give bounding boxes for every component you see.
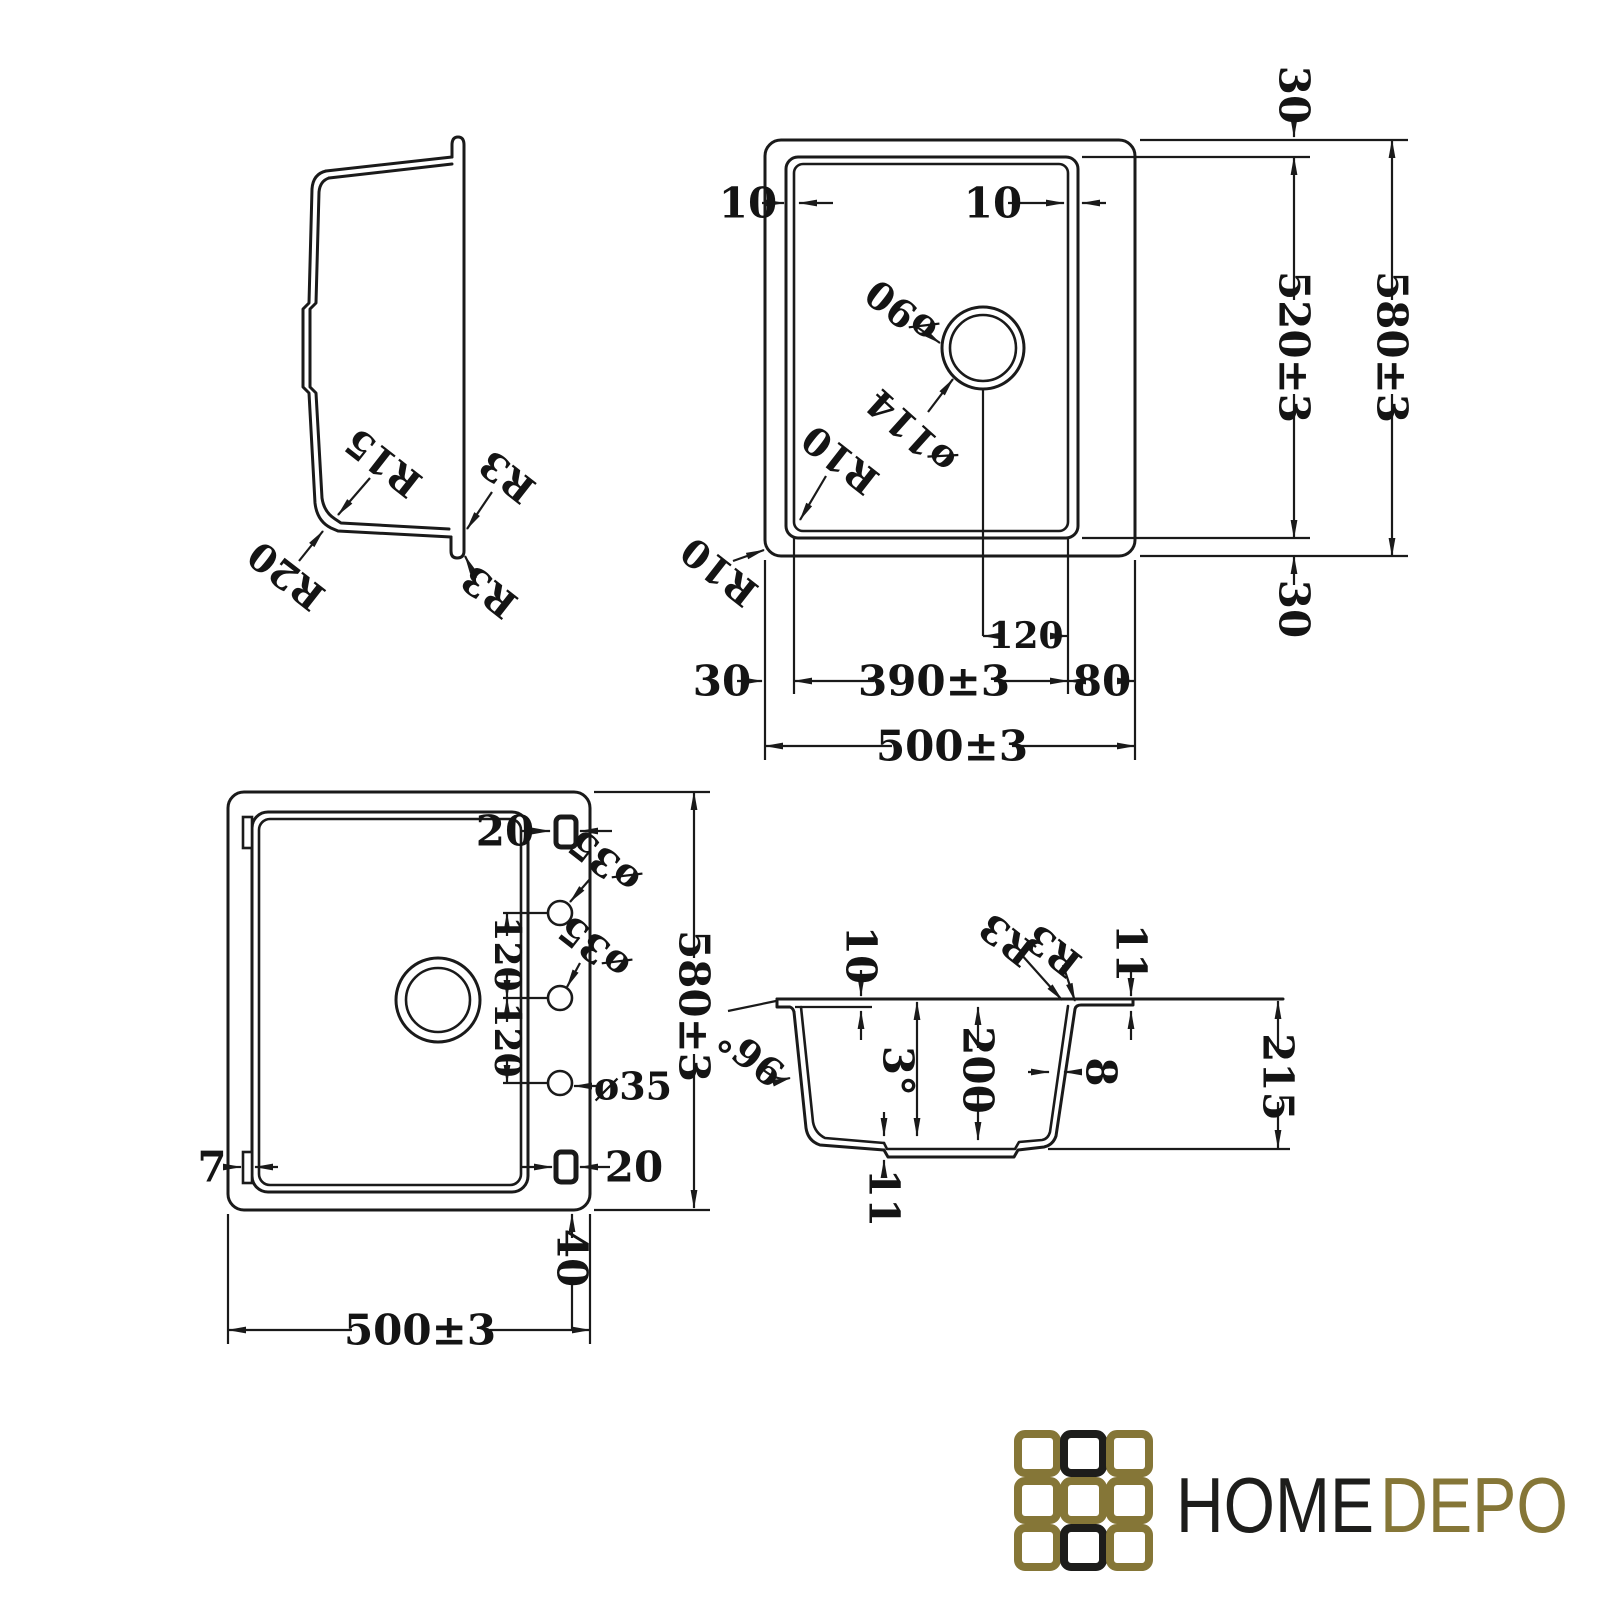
- label-total-depth: 215: [1254, 1033, 1303, 1121]
- leader-r20: [299, 531, 323, 561]
- label-draft-angle: 3°: [874, 1046, 923, 1096]
- label-bottom-total-height: 580±3: [670, 930, 719, 1082]
- section-left-wall-inner: [801, 1007, 884, 1143]
- side-profile-bottom-tab: [451, 529, 464, 558]
- logo-square-r3c3: [1110, 1528, 1149, 1567]
- side-profile-top-outer: [326, 157, 452, 171]
- leader-hole-top: [570, 879, 590, 902]
- homedepo-logo: HOME DEPO: [1018, 1434, 1568, 1567]
- clip-slot-bottom: [556, 1152, 576, 1182]
- leader-hole-mid: [567, 963, 580, 987]
- bottom-body-inner: [259, 819, 521, 1185]
- drain-boss-inner: [406, 968, 470, 1032]
- label-r10-bowl: R10: [793, 416, 887, 503]
- logo-square-r1c3: [1110, 1434, 1149, 1473]
- label-corner-angle: 96°: [709, 1016, 793, 1096]
- logo-square-r1c1: [1018, 1434, 1057, 1473]
- mount-hole-mid: [548, 986, 572, 1010]
- logo-square-r2c1: [1018, 1481, 1057, 1520]
- label-rim-gap-right: 10: [964, 179, 1022, 228]
- label-r3-lower: R3: [452, 556, 525, 627]
- label-r15: R15: [336, 419, 430, 506]
- technical-drawing-page: R15 R20 R3 R3 10 10: [0, 0, 1600, 1600]
- logo-square-r2c3: [1110, 1481, 1149, 1520]
- logo-wordmark: HOME DEPO: [1176, 1461, 1568, 1549]
- side-profile-top-inner: [329, 164, 452, 178]
- section-left-lip: [777, 999, 794, 1012]
- label-rim-step: 11: [1107, 924, 1156, 982]
- drain-flange-circle: [942, 307, 1024, 389]
- label-rim-drop: 10: [837, 926, 886, 984]
- side-tab-top: [243, 817, 252, 848]
- logo-text-depo: DEPO: [1380, 1461, 1568, 1549]
- label-hole-mid-dia: ø35: [549, 906, 638, 990]
- logo-square-r3c2: [1064, 1528, 1103, 1567]
- label-margin-left: 30: [693, 657, 751, 706]
- label-hole-bottom-dia: ø35: [594, 1064, 672, 1109]
- side-profile-hook: [452, 137, 464, 531]
- logo-square-r2c2: [1064, 1481, 1103, 1520]
- label-drain-dia: ø90: [856, 270, 945, 354]
- top-plan-view: 10 10 ø90 ø114 R10 R10 30 520±3 30 580±3…: [672, 66, 1417, 771]
- leader-r10-bowl: [800, 476, 826, 520]
- label-hole-spacing-upper: 120: [486, 916, 528, 991]
- label-bowl-depth: 200: [954, 1026, 1003, 1114]
- label-bottom-total-width: 500±3: [344, 1306, 496, 1355]
- logo-square-r1c2: [1064, 1434, 1103, 1473]
- drain-hole-circle: [950, 315, 1016, 381]
- logo-grid-icon: [1018, 1434, 1149, 1567]
- leader-r3-upper: [467, 492, 492, 529]
- label-bowl-width: 390±3: [858, 657, 1010, 706]
- label-r20: R20: [239, 532, 333, 619]
- mount-hole-bottom: [548, 1071, 572, 1095]
- label-clip-top: 20: [476, 807, 534, 856]
- label-fillet-outer: R3: [1016, 915, 1089, 986]
- section-angle-extension: [728, 1001, 776, 1011]
- side-tab-bottom: [243, 1152, 252, 1183]
- label-margin-bottom: 30: [1270, 580, 1319, 638]
- label-tab-width: 7: [197, 1143, 226, 1192]
- label-hole-spacing-lower: 120: [486, 1002, 528, 1077]
- label-drain-offset: 120: [988, 615, 1063, 657]
- drawing-canvas: R15 R20 R3 R3 10 10: [0, 0, 1600, 1600]
- label-r10-outer: R10: [672, 528, 766, 615]
- label-margin-right: 80: [1073, 657, 1131, 706]
- cross-section-view: 10 R3 R3 11 96° 3° 200 8 215 11: [709, 904, 1303, 1227]
- leader-drain-flange: [928, 379, 953, 412]
- label-r3-upper: R3: [470, 441, 543, 512]
- label-wall-thickness: 8: [1077, 1057, 1126, 1086]
- label-bottom-thickness: 11: [860, 1169, 909, 1227]
- label-clip-bottom: 20: [605, 1143, 663, 1192]
- bottom-outer-edge: [228, 792, 590, 1210]
- leader-r15: [338, 478, 370, 515]
- bottom-view: 20 ø35 ø35 ø35 120 120 580±3 7 20 40 500…: [197, 792, 718, 1355]
- drain-boss-outer: [396, 958, 480, 1042]
- label-base-offset: 40: [548, 1229, 597, 1287]
- label-total-width: 500±3: [876, 722, 1028, 771]
- label-margin-top: 30: [1270, 66, 1319, 124]
- logo-text-home: HOME: [1176, 1461, 1374, 1549]
- label-total-height: 580±3: [1368, 271, 1417, 423]
- side-profile-view: R15 R20 R3 R3: [239, 137, 544, 628]
- label-bowl-height: 520±3: [1270, 271, 1319, 423]
- label-rim-gap-left: 10: [719, 179, 777, 228]
- logo-square-r3c1: [1018, 1528, 1057, 1567]
